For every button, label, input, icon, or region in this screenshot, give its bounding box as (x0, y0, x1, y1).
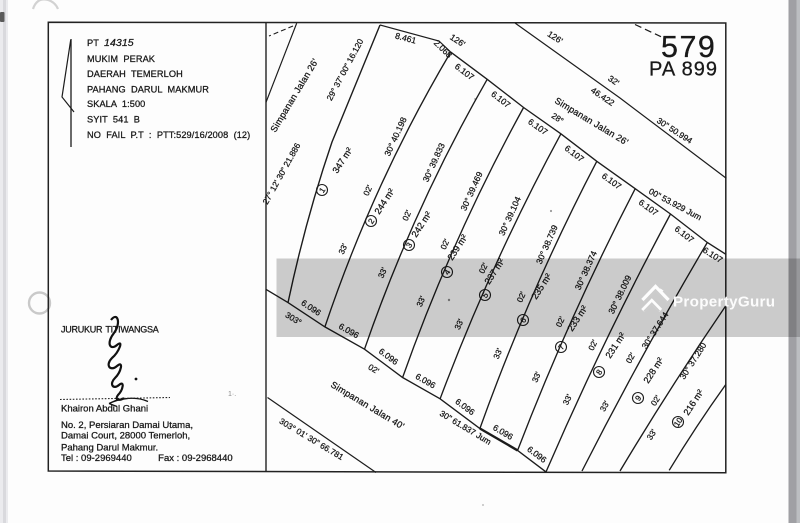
svg-text:PA 899: PA 899 (649, 59, 718, 81)
svg-text:DAERAH TEMERLOH: DAERAH TEMERLOH (87, 69, 183, 79)
svg-text:PT 14315: PT 14315 (87, 37, 134, 49)
svg-text:JURUKUR TITIWANGSA: JURUKUR TITIWANGSA (61, 325, 159, 335)
svg-text:SKALA 1:500: SKALA 1:500 (87, 99, 145, 109)
svg-text:Tel : 09-2969440 Fax: Tel : 09-2969440 Fax : 09-2968440 (61, 453, 233, 464)
svg-text:PAHANG DARUL MAKMUR: PAHANG DARUL MAKMUR (87, 84, 209, 94)
svg-text:MUKIM PERAK: MUKIM PERAK (87, 54, 156, 64)
svg-text:NO FAIL P.T : PTT:529/16/2008: NO FAIL P.T : PTT:529/16/2008 (12) (87, 130, 250, 140)
svg-text:Pahang Darul Makmur.: Pahang Darul Makmur. (61, 443, 158, 454)
svg-text:1·.: 1·. (228, 391, 236, 398)
svg-text:Damai Court, 28000 Temerloh,: Damai Court, 28000 Temerloh, (61, 430, 190, 441)
svg-text:Khairon Abdul Ghani: Khairon Abdul Ghani (61, 403, 148, 414)
svg-text:SYIT 541 B: SYIT 541 B (87, 114, 140, 124)
svg-text:PropertyGuru: PropertyGuru (673, 294, 775, 311)
